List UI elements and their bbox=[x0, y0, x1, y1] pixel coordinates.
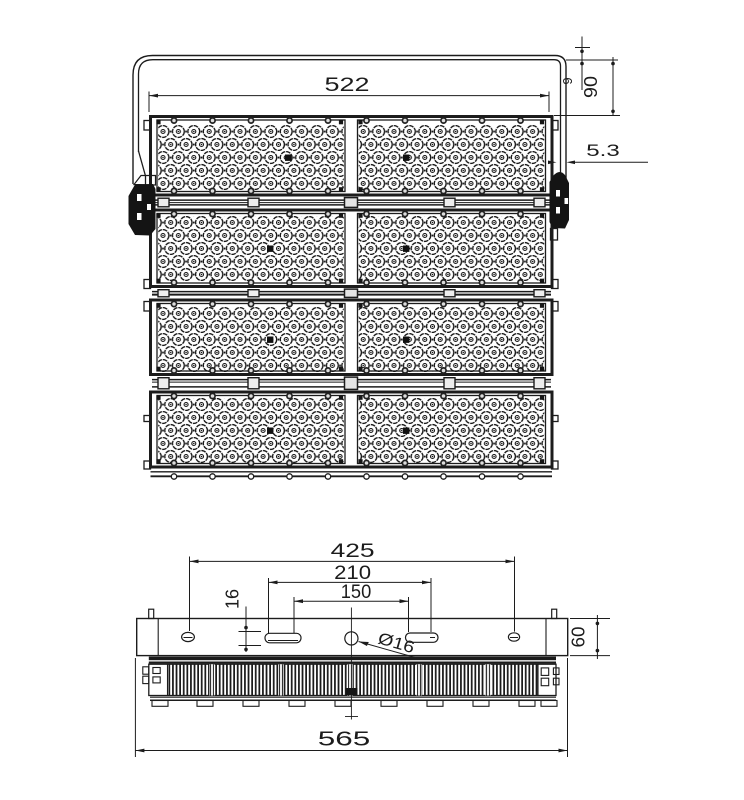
svg-text:150: 150 bbox=[341, 582, 372, 603]
svg-text:Ø16: Ø16 bbox=[376, 630, 417, 658]
svg-text:425: 425 bbox=[331, 541, 375, 562]
svg-text:9: 9 bbox=[560, 77, 575, 84]
svg-text:565: 565 bbox=[318, 729, 371, 751]
svg-text:522: 522 bbox=[325, 75, 370, 96]
svg-text:16: 16 bbox=[223, 589, 243, 609]
svg-text:5.3: 5.3 bbox=[586, 142, 620, 160]
svg-text:60: 60 bbox=[569, 627, 589, 648]
svg-text:210: 210 bbox=[334, 563, 371, 584]
svg-text:90: 90 bbox=[581, 76, 601, 98]
